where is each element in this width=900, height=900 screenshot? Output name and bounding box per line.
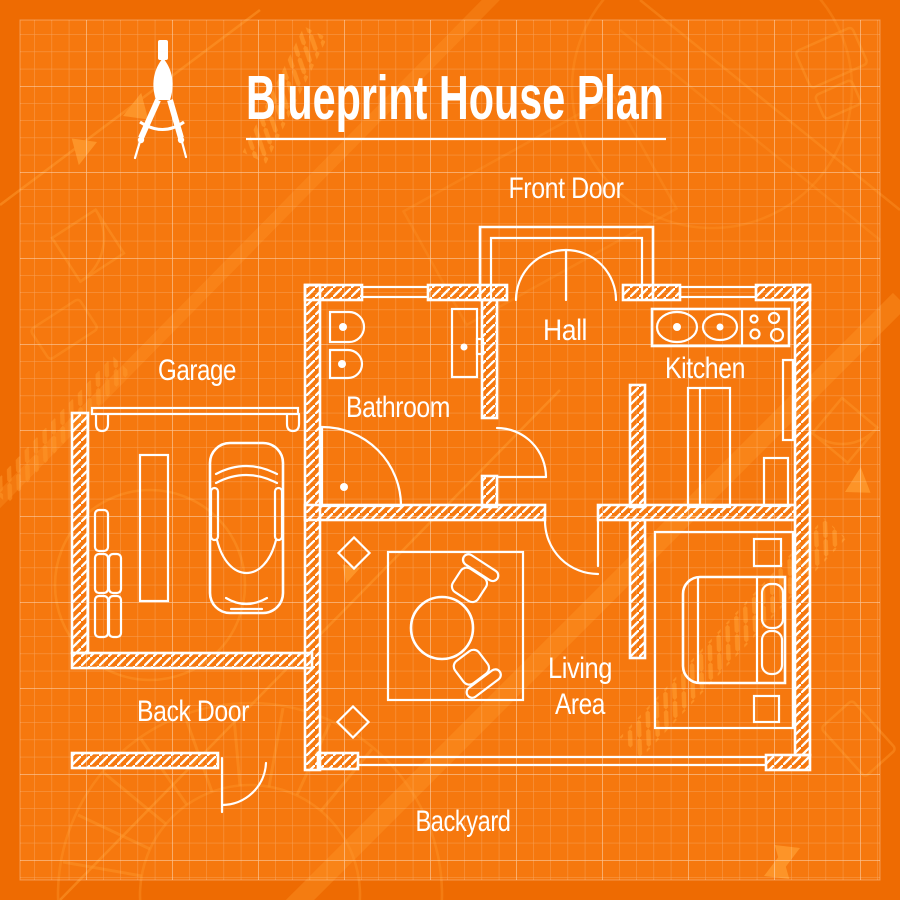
label-garage: Garage bbox=[158, 354, 236, 387]
label-kitchen: Kitchen bbox=[665, 352, 745, 385]
poster-title: Blueprint House Plan bbox=[246, 64, 666, 139]
label-hall: Hall bbox=[543, 314, 587, 347]
label-living-area-line2: Area bbox=[555, 688, 606, 721]
label-backyard: Backyard bbox=[416, 805, 511, 838]
label-back-door: Back Door bbox=[137, 695, 249, 728]
grid bbox=[20, 20, 880, 880]
label-bathroom: Bathroom bbox=[346, 391, 450, 424]
label-living-area-line1: Living bbox=[548, 652, 612, 685]
blueprint-house-plan-poster: Blueprint House Plan bbox=[0, 0, 900, 900]
title-text: Blueprint House Plan bbox=[246, 64, 664, 133]
label-front-door: Front Door bbox=[509, 172, 624, 205]
